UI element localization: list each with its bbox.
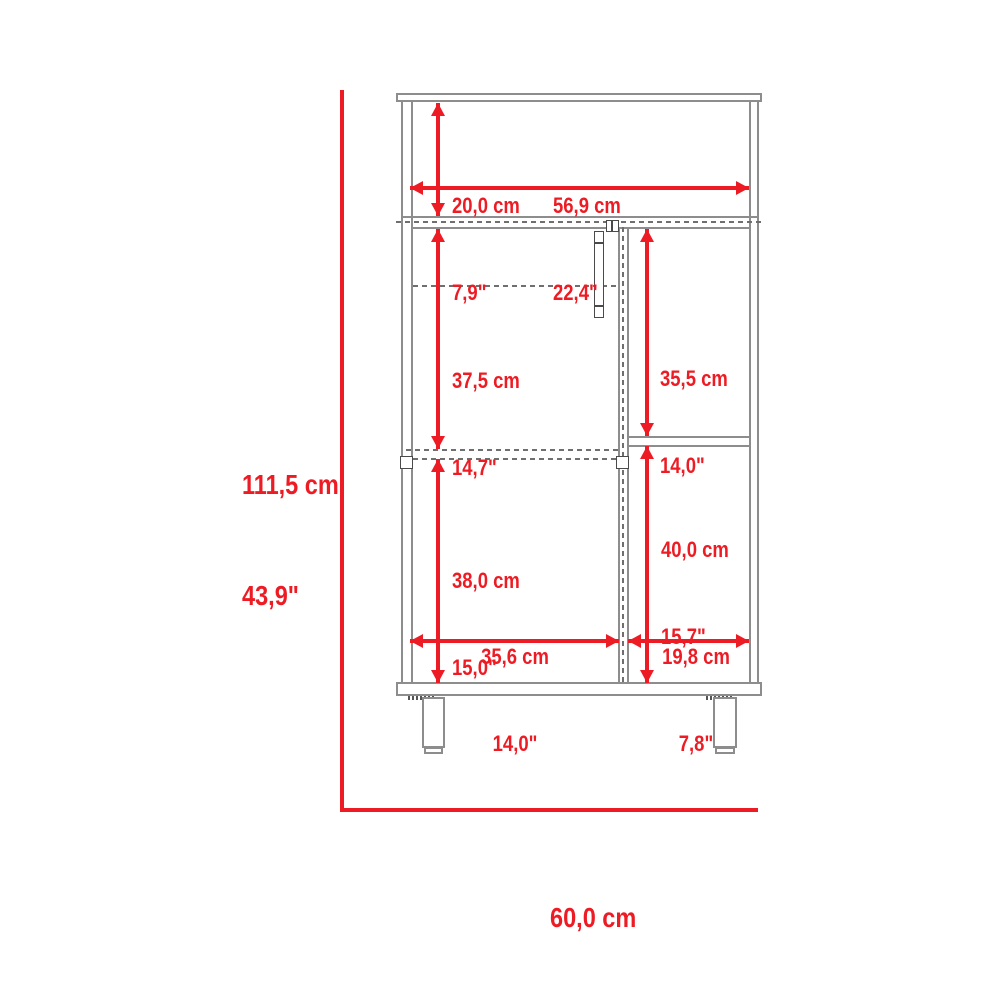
dim-arrow-right-upper-height	[645, 229, 649, 436]
dim-value-inch: 14,0"	[660, 451, 728, 480]
dim-label-interior-width: 56,9 cm 22,4"	[553, 133, 621, 365]
dim-value-inch: 14,7"	[452, 453, 520, 482]
dim-value-cm: 35,6 cm	[431, 642, 599, 671]
dim-value-inch: 22,4"	[553, 278, 621, 307]
dimension-diagram: 20,0 cm 7,9" 56,9 cm 22,4" 37,5 cm 14,7"…	[0, 0, 1000, 1000]
overall-height-label: 111,5 cm 43,9"	[242, 392, 339, 688]
dim-label-left-upper-height: 37,5 cm 14,7"	[452, 308, 520, 540]
left-mid-hinge	[400, 456, 413, 469]
dim-arrow-top-compartment-height	[436, 103, 440, 216]
dim-label-left-compartment-width: 35,6 cm 14,0"	[431, 584, 599, 816]
dim-value-cm: 19,8 cm	[612, 642, 780, 671]
dim-value-cm: 60,0 cm	[550, 899, 636, 936]
dim-value-inch: 7,8"	[612, 729, 780, 758]
dim-value-inch: 14,0"	[431, 729, 599, 758]
overall-height-extent-line	[340, 90, 344, 812]
cabinet-top-panel	[396, 93, 762, 102]
dim-label-right-compartment-width: 19,8 cm 7,8"	[612, 584, 780, 816]
left-side-panel-outer	[401, 102, 403, 682]
dim-value-cm: 56,9 cm	[553, 191, 621, 220]
dim-value-inch: 7,9"	[452, 278, 520, 307]
center-mid-hinge	[616, 456, 629, 469]
dim-value-cm: 40,0 cm	[661, 535, 729, 564]
dim-value-cm: 111,5 cm	[242, 466, 339, 503]
overall-width-label: 60,0 cm 23,6"	[550, 825, 636, 1000]
dim-arrow-left-upper-height	[436, 229, 440, 449]
dim-value-cm: 20,0 cm	[452, 191, 520, 220]
dim-value-cm: 35,5 cm	[660, 364, 728, 393]
dim-value-cm: 37,5 cm	[452, 366, 520, 395]
dim-value-inch: 43,9"	[242, 577, 339, 614]
